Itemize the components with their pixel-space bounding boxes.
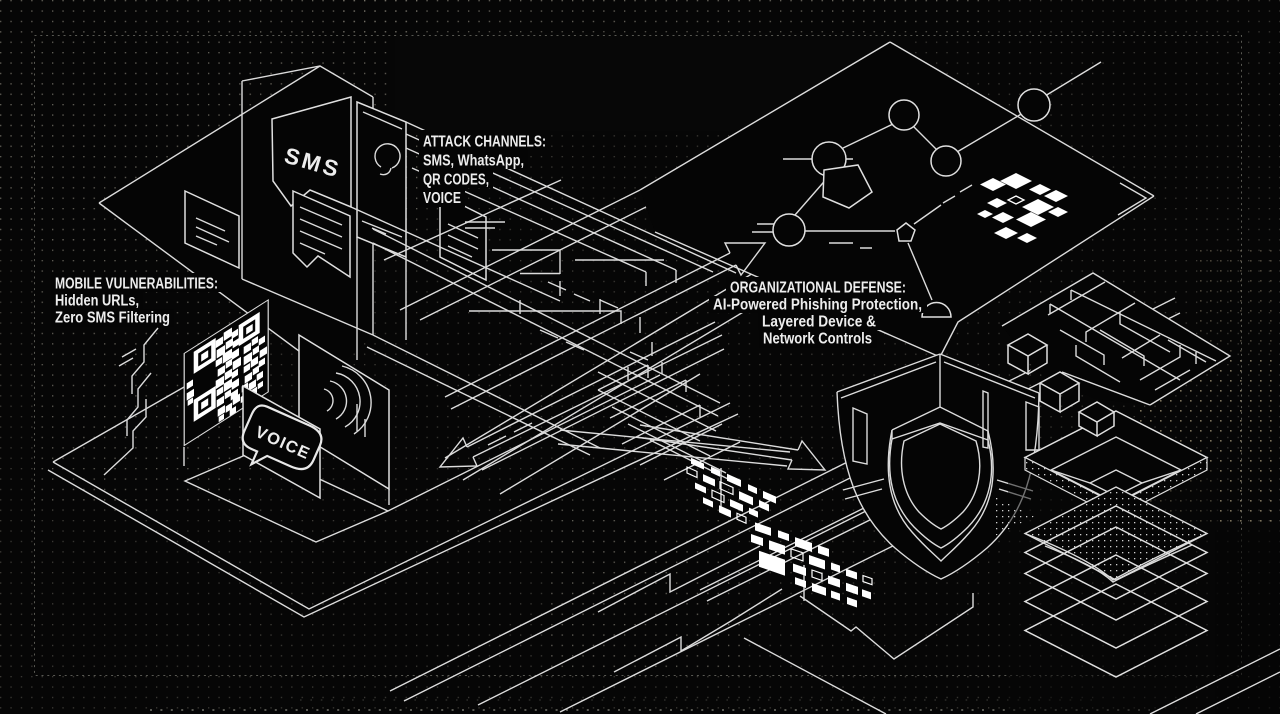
svg-text:ORGANIZATIONAL DEFENSE:: ORGANIZATIONAL DEFENSE: [730, 280, 906, 297]
svg-text:ATTACK CHANNELS:: ATTACK CHANNELS: [423, 134, 546, 151]
svg-text:Hidden URLs,: Hidden URLs, [55, 293, 139, 310]
svg-text:VOICE: VOICE [423, 190, 461, 207]
svg-text:SMS, WhatsApp,: SMS, WhatsApp, [423, 153, 524, 170]
svg-text:Zero SMS Filtering: Zero SMS Filtering [55, 310, 170, 327]
svg-text:AI-Powered Phishing Protection: AI-Powered Phishing Protection, [713, 297, 922, 314]
svg-text:Network Controls: Network Controls [763, 331, 872, 348]
svg-text:MOBILE VULNERABILITIES:: MOBILE VULNERABILITIES: [55, 276, 218, 293]
svg-text:Layered Device &: Layered Device & [762, 314, 876, 331]
svg-text:QR CODES,: QR CODES, [423, 172, 489, 189]
